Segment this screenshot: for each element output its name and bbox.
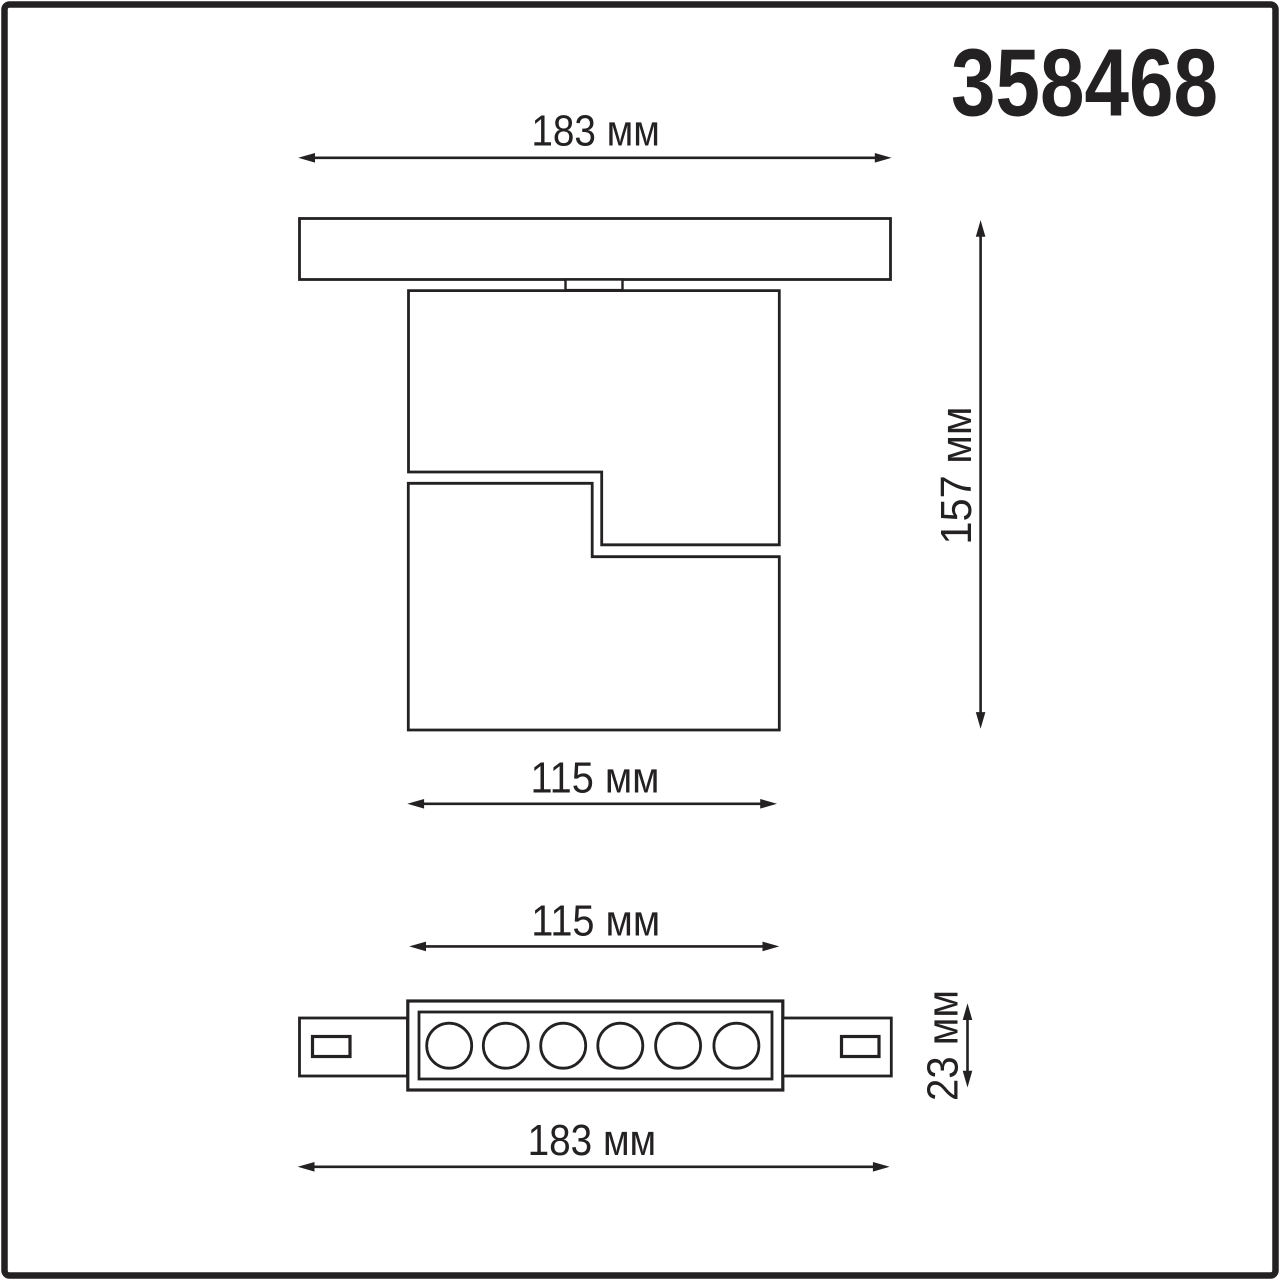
svg-text:183 мм: 183 мм [528, 1116, 657, 1165]
svg-text:23 мм: 23 мм [919, 990, 968, 1101]
svg-text:183 мм: 183 мм [531, 107, 660, 156]
svg-text:157 мм: 157 мм [932, 407, 981, 545]
svg-text:115 мм: 115 мм [531, 896, 660, 945]
svg-text:358468: 358468 [951, 30, 1218, 137]
svg-text:115 мм: 115 мм [531, 753, 660, 802]
